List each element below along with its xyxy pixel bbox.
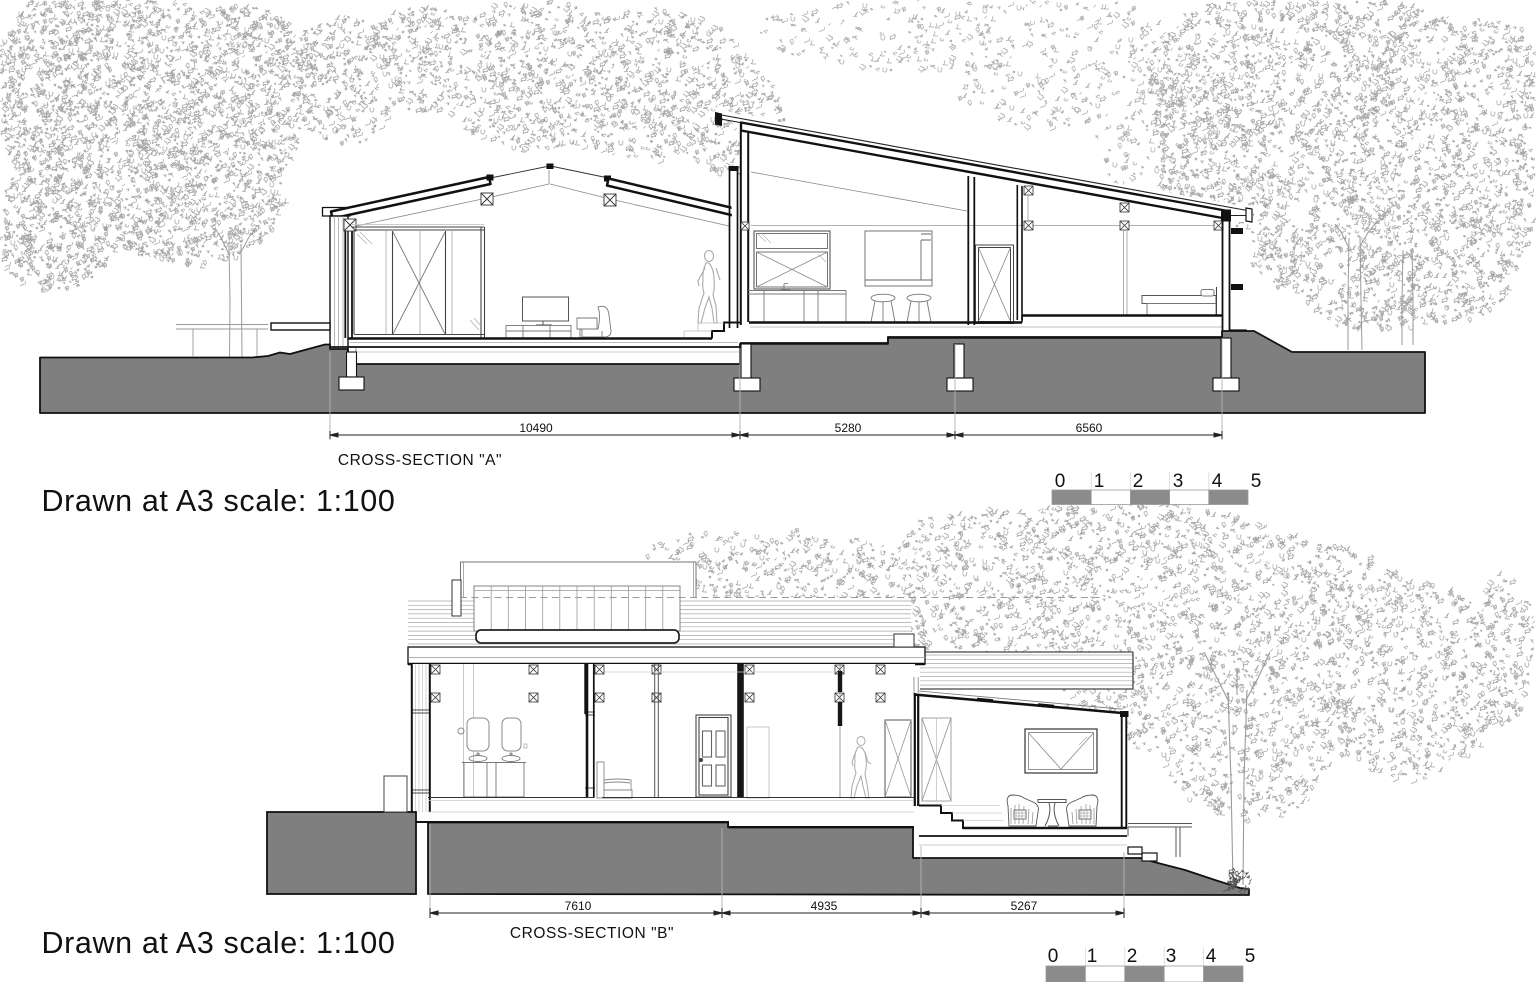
svg-text:5: 5 [1251, 471, 1262, 492]
svg-text:5267: 5267 [1011, 899, 1038, 913]
svg-text:Drawn at A3 scale: 1:100: Drawn at A3 scale: 1:100 [42, 926, 396, 960]
svg-text:7610: 7610 [565, 899, 592, 913]
svg-text:5: 5 [1245, 946, 1256, 967]
svg-text:2: 2 [1133, 471, 1144, 492]
svg-text:6560: 6560 [1076, 421, 1103, 435]
svg-text:4: 4 [1212, 471, 1223, 492]
svg-text:Drawn at A3 scale: 1:100: Drawn at A3 scale: 1:100 [42, 484, 396, 518]
svg-text:1: 1 [1087, 946, 1098, 967]
svg-text:1: 1 [1094, 471, 1105, 492]
svg-text:10490: 10490 [519, 421, 553, 435]
svg-text:0: 0 [1048, 946, 1059, 967]
svg-text:3: 3 [1166, 946, 1177, 967]
svg-text:3: 3 [1173, 471, 1184, 492]
svg-text:5280: 5280 [835, 421, 862, 435]
svg-text:CROSS-SECTION "A": CROSS-SECTION "A" [338, 452, 502, 469]
svg-text:4: 4 [1206, 946, 1217, 967]
svg-text:0: 0 [1055, 471, 1066, 492]
svg-text:CROSS-SECTION "B": CROSS-SECTION "B" [510, 925, 674, 942]
svg-text:2: 2 [1127, 946, 1138, 967]
svg-text:4935: 4935 [811, 899, 838, 913]
